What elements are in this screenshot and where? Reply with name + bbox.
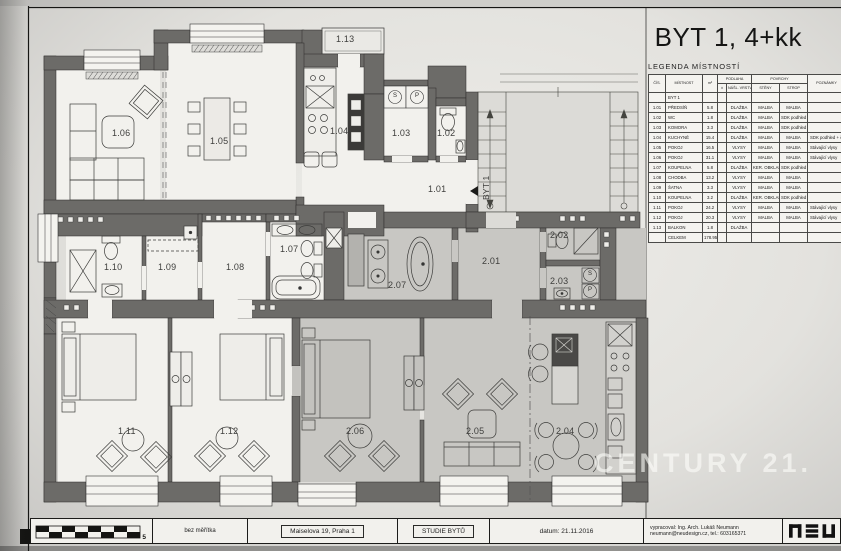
date-cell: datum: 21.11.2016 bbox=[490, 519, 644, 543]
legend-cell: VLYSY bbox=[727, 183, 752, 193]
legend-cell: MALBA bbox=[780, 173, 808, 183]
col-naslapna-vrstva: NÁŠL. VRSTVA bbox=[727, 84, 752, 93]
legend-cell: KUCHYNĚ bbox=[666, 133, 703, 143]
legend-cell: 1.07 bbox=[649, 163, 666, 173]
col-m2: m² bbox=[703, 75, 718, 93]
legend-cell bbox=[718, 193, 727, 203]
legend-cell: 15.4 bbox=[703, 133, 718, 143]
doc-type-cell: STUDIE BYTŮ bbox=[398, 519, 490, 543]
legend-cell bbox=[752, 233, 780, 243]
legend-row: 1.12POKOJ20.3VLYSYMALBAMALBAStávající vl… bbox=[649, 213, 841, 223]
legend-cell: POKOJ bbox=[666, 203, 703, 213]
legend-cell bbox=[718, 123, 727, 133]
legend-cell bbox=[808, 113, 841, 123]
room-label-2-01: 2.01 bbox=[482, 256, 500, 266]
legend-heading: LEGENDA MÍSTNOSTÍ bbox=[648, 62, 841, 71]
legend-cell: POKOJ bbox=[666, 153, 703, 163]
legend-cell: MALBA bbox=[752, 113, 780, 123]
legend-cell: 1.03 bbox=[649, 123, 666, 133]
legend-cell bbox=[718, 153, 727, 163]
col-povrchy: POVRCHY bbox=[752, 75, 808, 84]
legend-cell: 1.10 bbox=[649, 193, 666, 203]
room-label-1-10: 1.10 bbox=[104, 262, 122, 272]
legend-cell: 16.5 bbox=[703, 143, 718, 153]
col-cislo: ČÍS. bbox=[649, 75, 666, 93]
address-cell: Maiselova 19, Praha 1 bbox=[248, 519, 398, 543]
room-label-1-03: 1.03 bbox=[392, 128, 410, 138]
drawing-title: BYT 1, 4+kk bbox=[630, 22, 802, 53]
legend-cell: MALBA bbox=[780, 103, 808, 113]
wardrobe-divider-206-205 bbox=[404, 356, 424, 410]
logo-cell bbox=[783, 519, 840, 543]
legend-cell: VLYSY bbox=[727, 153, 752, 163]
legend-cell bbox=[703, 93, 718, 103]
legend-cell bbox=[718, 133, 727, 143]
col-steny: STĚNY bbox=[752, 84, 780, 93]
legend-cell bbox=[752, 93, 780, 103]
legend-panel: LEGENDA MÍSTNOSTÍ ČÍS. MÍSTNOST m² PODLA… bbox=[648, 62, 841, 243]
legend-cell bbox=[718, 233, 727, 243]
legend-cell: VLYSY bbox=[727, 173, 752, 183]
room-label-1-13: 1.13 bbox=[336, 34, 354, 44]
legend-cell: VLYSY bbox=[727, 203, 752, 213]
legend-cell bbox=[808, 223, 841, 233]
scan-shadow-top bbox=[0, 0, 841, 6]
legend-cell: DLAŽBA bbox=[727, 163, 752, 173]
room-label-2-07: 2.07 bbox=[388, 280, 406, 290]
scale-note-cell: bez měřítka bbox=[153, 519, 248, 543]
col-podlaha: PODLAHA bbox=[718, 75, 752, 84]
room-label-1-07: 1.07 bbox=[280, 244, 298, 254]
kitchen-counter-104 bbox=[304, 68, 337, 167]
legend-cell: CHODBA bbox=[666, 173, 703, 183]
room-label-1-12: 1.12 bbox=[220, 426, 238, 436]
dryer-letter-103: S bbox=[391, 93, 399, 99]
room-label-1-08: 1.08 bbox=[226, 262, 244, 272]
washer-letter-103: P bbox=[413, 93, 421, 99]
legend-cell bbox=[808, 183, 841, 193]
legend-cell bbox=[718, 223, 727, 233]
legend-cell bbox=[808, 123, 841, 133]
legend-cell: 1.11 bbox=[649, 203, 666, 213]
legend-cell bbox=[649, 233, 666, 243]
legend-cell: SDK podhled bbox=[780, 163, 808, 173]
window-bottom-111 bbox=[86, 476, 158, 506]
legend-cell bbox=[718, 163, 727, 173]
legend-cell: 1.01 bbox=[649, 103, 666, 113]
legend-cell: 3.2 bbox=[703, 193, 718, 203]
legend-cell: MALBA bbox=[780, 203, 808, 213]
legend-cell: MALBA bbox=[752, 103, 780, 113]
legend-row: 1.11POKOJ24.2VLYSYMALBAMALBAStávající vl… bbox=[649, 203, 841, 213]
room-label-1-04: 1.04 bbox=[330, 126, 348, 136]
legend-cell: KOUPELNA bbox=[666, 193, 703, 203]
room-label-1-06: 1.06 bbox=[112, 128, 130, 138]
legend-cell: MALBA bbox=[752, 183, 780, 193]
legend-cell: DLAŽBA bbox=[727, 133, 752, 143]
legend-row: 1.13BALKON1.8DLAŽBA bbox=[649, 223, 841, 233]
washer-letter-203: P bbox=[586, 287, 594, 293]
legend-cell: 1.04 bbox=[649, 133, 666, 143]
legend-cell bbox=[808, 93, 841, 103]
legend-cell: WC bbox=[666, 113, 703, 123]
legend-cell: MALBA bbox=[780, 133, 808, 143]
legend-cell: 1.09 bbox=[649, 183, 666, 193]
legend-cell: MALBA bbox=[752, 123, 780, 133]
legend-row: 1.08CHODBA13.2VLYSYMALBAMALBA bbox=[649, 173, 841, 183]
legend-row: BYT 1 bbox=[649, 93, 841, 103]
room-label-2-04: 2.04 bbox=[556, 426, 574, 436]
room-label-1-01: 1.01 bbox=[428, 184, 446, 194]
legend-cell: 5.8 bbox=[703, 163, 718, 173]
legend-cell: KOUPELNA bbox=[666, 163, 703, 173]
legend-cell: Stávající vlysy bbox=[808, 153, 841, 163]
window-bottom-112 bbox=[220, 476, 272, 506]
legend-cell: DLAŽBA bbox=[727, 223, 752, 233]
scale-number: 5 bbox=[142, 534, 146, 541]
window-bottom-205 bbox=[440, 476, 508, 506]
room-label-1-09: 1.09 bbox=[158, 262, 176, 272]
legend-cell: POKOJ bbox=[666, 143, 703, 153]
scanned-floorplan-page: BYT 1, 4+kk LEGENDA MÍSTNOSTÍ ČÍS. MÍSTN… bbox=[0, 0, 841, 551]
author-line2: neumann@neudesign.cz, tel.: 603165371 bbox=[650, 531, 746, 538]
legend-row: CELKEM178.95 bbox=[649, 233, 841, 243]
legend-row: 1.04KUCHYNĚ15.4DLAŽBAMALBAMALBASDK podhl… bbox=[649, 133, 841, 143]
century21-watermark: CENTURY 21. bbox=[594, 448, 812, 479]
legend-cell: MALBA bbox=[780, 213, 808, 223]
legend-cell: 1.08 bbox=[649, 173, 666, 183]
room-label-1-05: 1.05 bbox=[210, 136, 228, 146]
room-label-1-11: 1.11 bbox=[118, 426, 136, 436]
legend-cell: 1.06 bbox=[649, 153, 666, 163]
room-label-1-02: 1.02 bbox=[437, 128, 455, 138]
legend-cell bbox=[727, 233, 752, 243]
legend-cell: VLYSY bbox=[727, 143, 752, 153]
legend-cell: 1.13 bbox=[649, 223, 666, 233]
legend-cell: BALKON bbox=[666, 223, 703, 233]
legend-cell: 13.2 bbox=[703, 173, 718, 183]
legend-cell: CELKEM bbox=[666, 233, 703, 243]
legend-cell: Stávající vlysy bbox=[808, 203, 841, 213]
legend-cell bbox=[718, 143, 727, 153]
legend-cell: PŘEDSÍŇ bbox=[666, 103, 703, 113]
legend-cell: KER. OBKLAD bbox=[752, 193, 780, 203]
legend-cell: KOMORA bbox=[666, 123, 703, 133]
title-block: 5 bez měřítka Maiselova 19, Praha 1 STUD… bbox=[30, 518, 841, 544]
legend-cell: 1.05 bbox=[649, 143, 666, 153]
window-bottom-206 bbox=[298, 484, 356, 506]
legend-cell: KER. OBKLAD bbox=[752, 163, 780, 173]
wardrobe-divider-111-112 bbox=[170, 352, 192, 406]
legend-cell: MALBA bbox=[752, 143, 780, 153]
legend-cell: BYT 1 bbox=[666, 93, 703, 103]
room-label-2-03: 2.03 bbox=[550, 276, 568, 286]
legend-cell bbox=[808, 173, 841, 183]
dryer-letter-203: S bbox=[586, 271, 594, 277]
legend-row: 1.05POKOJ16.5VLYSYMALBAMALBAStávající vl… bbox=[649, 143, 841, 153]
legend-cell bbox=[718, 93, 727, 103]
byt1-entrance-label: BYT 1 bbox=[481, 176, 491, 200]
legend-cell: 3.3 bbox=[703, 123, 718, 133]
legend-cell bbox=[808, 103, 841, 113]
legend-cell: 20.3 bbox=[703, 213, 718, 223]
legend-cell bbox=[649, 93, 666, 103]
legend-cell: Stávající vlysy bbox=[808, 143, 841, 153]
legend-table: ČÍS. MÍSTNOST m² PODLAHA POVRCHY POZNÁMK… bbox=[648, 74, 841, 243]
legend-cell: DLAŽBA bbox=[727, 123, 752, 133]
legend-cell bbox=[718, 113, 727, 123]
kitchen-tall-units-104 bbox=[348, 94, 364, 150]
scale-bar-cell: 5 bbox=[31, 519, 153, 543]
neu-logo bbox=[789, 524, 835, 538]
legend-cell bbox=[780, 223, 808, 233]
legend-cell: MALBA bbox=[752, 213, 780, 223]
legend-cell: SDK podhled + část bbox=[808, 133, 841, 143]
room-label-2-06: 2.06 bbox=[346, 426, 364, 436]
legend-cell: 1.8 bbox=[703, 223, 718, 233]
legend-body: BYT 11.01PŘEDSÍŇ5.8DLAŽBAMALBAMALBA1.02W… bbox=[649, 93, 841, 243]
stair-hall-floor bbox=[478, 92, 638, 212]
window-bottom-204 bbox=[552, 476, 622, 506]
room-label-2-05: 2.05 bbox=[466, 426, 484, 436]
legend-cell bbox=[718, 213, 727, 223]
legend-cell bbox=[752, 223, 780, 233]
legend-cell: MALBA bbox=[752, 133, 780, 143]
legend-cell bbox=[808, 233, 841, 243]
legend-cell: 1.12 bbox=[649, 213, 666, 223]
legend-cell: Stávající vlysy bbox=[808, 213, 841, 223]
room-label-2-02: 2.02 bbox=[550, 230, 568, 240]
legend-cell: DLAŽBA bbox=[727, 103, 752, 113]
legend-cell: MALBA bbox=[780, 183, 808, 193]
legend-cell: SDK podhled bbox=[780, 193, 808, 203]
legend-cell: 1.02 bbox=[649, 113, 666, 123]
shaft-108 bbox=[184, 226, 197, 239]
window-top-105 bbox=[190, 24, 264, 43]
legend-cell: DLAŽBA bbox=[727, 113, 752, 123]
legend-cell bbox=[780, 93, 808, 103]
legend-cell: DLAŽBA bbox=[727, 193, 752, 203]
window-left-110 bbox=[38, 214, 58, 262]
legend-cell: 178.95 bbox=[703, 233, 718, 243]
window-top-106 bbox=[84, 50, 140, 70]
legend-cell: 31.1 bbox=[703, 153, 718, 163]
shaft-207 bbox=[326, 228, 342, 248]
legend-cell bbox=[718, 173, 727, 183]
col-mistnost: MÍSTNOST bbox=[666, 75, 703, 93]
legend-row: 1.09ŠATNA3.3VLYSYMALBAMALBA bbox=[649, 183, 841, 193]
legend-cell bbox=[780, 233, 808, 243]
legend-row: 1.07KOUPELNA5.8DLAŽBAKER. OBKLADSDK podh… bbox=[649, 163, 841, 173]
legend-row: 1.10KOUPELNA3.2DLAŽBAKER. OBKLADSDK podh… bbox=[649, 193, 841, 203]
legend-cell: 24.2 bbox=[703, 203, 718, 213]
author-cell: vypracoval: Ing. Arch. Lukáš Neumann neu… bbox=[644, 519, 783, 543]
scale-bar bbox=[32, 519, 152, 543]
legend-row: 1.06POKOJ31.1VLYSYMALBAMALBAStávající vl… bbox=[649, 153, 841, 163]
legend-cell: MALBA bbox=[752, 153, 780, 163]
legend-cell: VLYSY bbox=[727, 213, 752, 223]
legend-row: 1.03KOMORA3.3DLAŽBAMALBASDK podhled bbox=[649, 123, 841, 133]
legend-cell bbox=[718, 203, 727, 213]
col-vyska: ± bbox=[718, 84, 727, 93]
legend-cell: MALBA bbox=[752, 203, 780, 213]
col-strop: STROP bbox=[780, 84, 808, 93]
legend-cell bbox=[727, 93, 752, 103]
legend-row: 1.02WC1.8DLAŽBAMALBASDK podhled bbox=[649, 113, 841, 123]
legend-cell: ŠATNA bbox=[666, 183, 703, 193]
legend-cell bbox=[808, 163, 841, 173]
doc-type-text: STUDIE BYTŮ bbox=[413, 525, 474, 538]
legend-cell: 5.8 bbox=[703, 103, 718, 113]
legend-cell: 3.3 bbox=[703, 183, 718, 193]
legend-cell: 1.8 bbox=[703, 113, 718, 123]
legend-cell: MALBA bbox=[752, 173, 780, 183]
legend-cell: SDK podhled bbox=[780, 123, 808, 133]
legend-row: 1.01PŘEDSÍŇ5.8DLAŽBAMALBAMALBA bbox=[649, 103, 841, 113]
legend-cell bbox=[808, 193, 841, 203]
col-poznamky: POZNÁMKY bbox=[808, 75, 841, 93]
address-text: Maiselova 19, Praha 1 bbox=[281, 525, 364, 538]
scan-shadow-bottom bbox=[0, 546, 841, 551]
legend-cell: SDK podhled bbox=[780, 113, 808, 123]
legend-cell: MALBA bbox=[780, 153, 808, 163]
legend-cell: POKOJ bbox=[666, 213, 703, 223]
legend-cell: MALBA bbox=[780, 143, 808, 153]
legend-cell bbox=[718, 183, 727, 193]
legend-cell bbox=[718, 103, 727, 113]
